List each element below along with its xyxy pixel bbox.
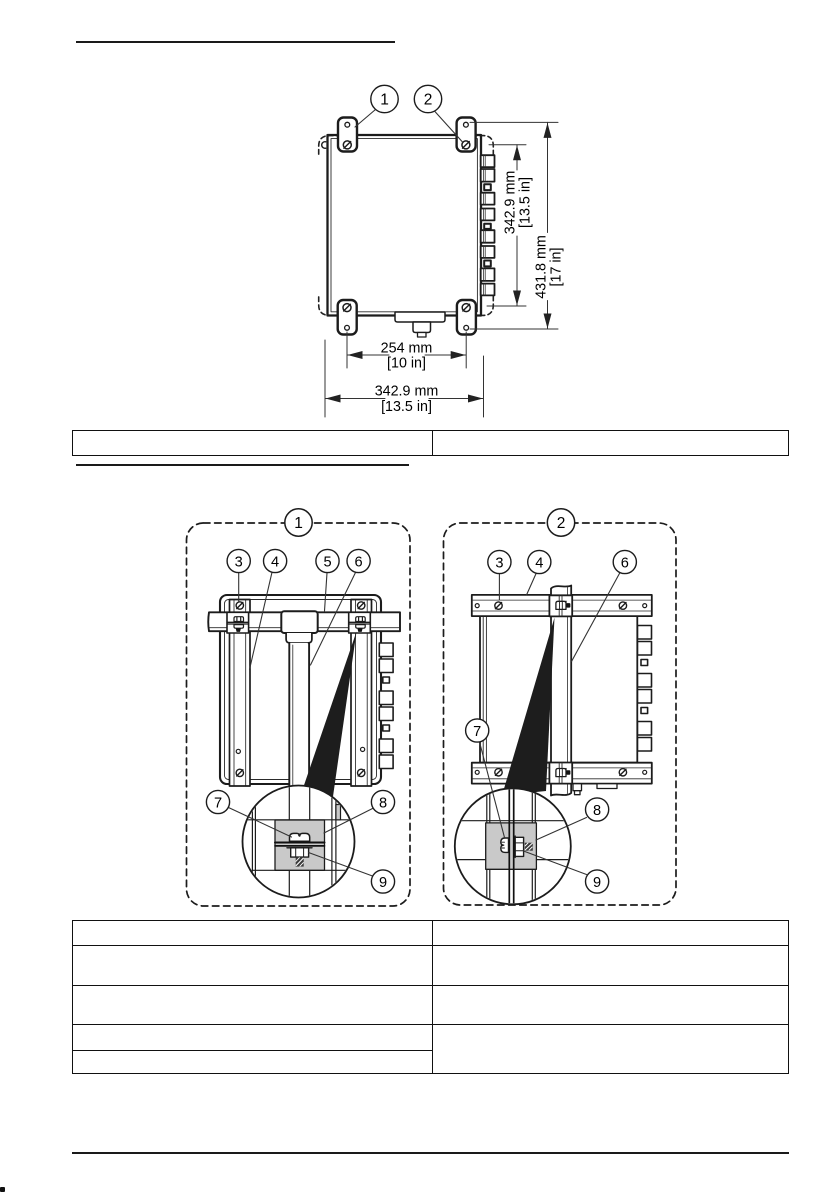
svg-text:5: 5 <box>323 554 331 570</box>
svg-text:3: 3 <box>495 555 503 571</box>
svg-text:3: 3 <box>235 554 243 570</box>
svg-text:1: 1 <box>380 92 389 109</box>
svg-text:[17 in]: [17 in] <box>549 248 565 287</box>
svg-text:8: 8 <box>593 803 601 819</box>
svg-text:4: 4 <box>535 555 543 571</box>
svg-text:6: 6 <box>355 554 363 570</box>
svg-text:[13.5 in]: [13.5 in] <box>518 177 534 228</box>
svg-text:4: 4 <box>271 554 279 570</box>
svg-text:9: 9 <box>593 875 601 891</box>
svg-text:254 mm: 254 mm <box>381 340 433 356</box>
svg-text:7: 7 <box>214 795 222 811</box>
svg-text:342.9 mm: 342.9 mm <box>503 171 519 235</box>
svg-text:342.9 mm: 342.9 mm <box>375 384 439 400</box>
svg-text:6: 6 <box>621 555 629 571</box>
svg-text:2: 2 <box>557 515 566 532</box>
svg-text:431.8 mm: 431.8 mm <box>534 235 550 299</box>
svg-text:1: 1 <box>294 515 303 532</box>
svg-text:7: 7 <box>473 724 481 740</box>
svg-text:2: 2 <box>424 92 433 109</box>
svg-text:[13.5 in]: [13.5 in] <box>381 399 432 415</box>
svg-text:9: 9 <box>379 875 387 891</box>
svg-text:[10 in]: [10 in] <box>387 355 426 371</box>
svg-text:8: 8 <box>379 795 387 811</box>
